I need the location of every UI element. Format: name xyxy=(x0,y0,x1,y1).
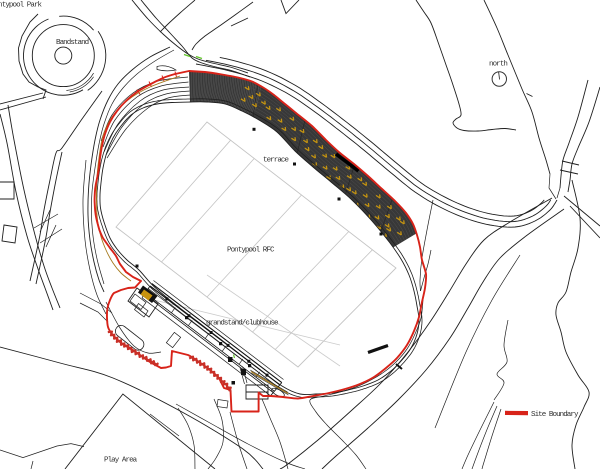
svg-text:terrace: terrace xyxy=(263,157,288,165)
svg-text:Pontypool Park: Pontypool Park xyxy=(0,1,43,9)
svg-text:Bandstand: Bandstand xyxy=(56,39,89,47)
svg-text:Site Boundary: Site Boundary xyxy=(531,411,579,419)
svg-text:Play Area: Play Area xyxy=(104,457,138,465)
svg-text:Pontypool RFC: Pontypool RFC xyxy=(227,247,275,255)
svg-text:grandstand/clubhouse: grandstand/clubhouse xyxy=(206,320,278,328)
svg-text:north: north xyxy=(489,61,507,69)
